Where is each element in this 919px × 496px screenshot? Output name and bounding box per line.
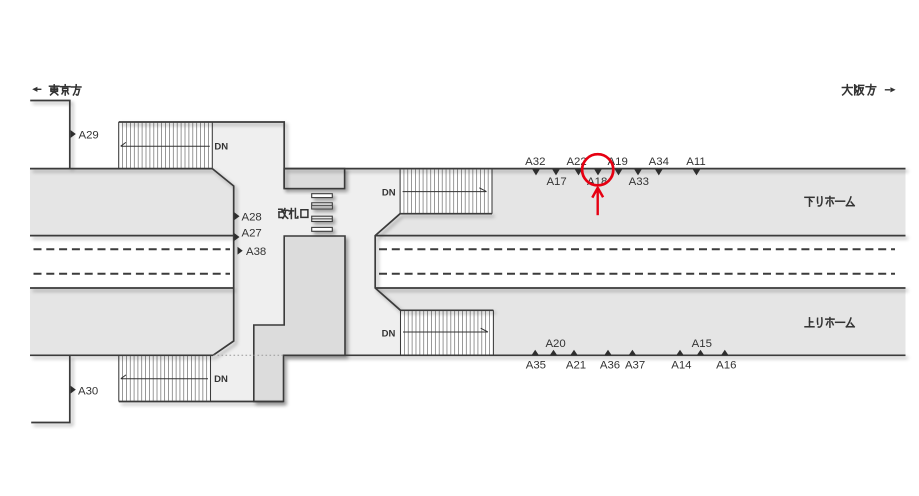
- svg-text:DN: DN: [382, 328, 396, 339]
- svg-text:A38: A38: [246, 246, 266, 258]
- svg-text:A28: A28: [242, 211, 262, 223]
- svg-text:A35: A35: [526, 359, 546, 371]
- svg-text:DN: DN: [214, 374, 228, 385]
- svg-text:A11: A11: [686, 156, 705, 168]
- svg-text:A30: A30: [78, 386, 98, 398]
- svg-text:A34: A34: [649, 156, 669, 168]
- svg-text:A36: A36: [600, 359, 620, 371]
- svg-text:A17: A17: [546, 176, 566, 188]
- svg-text:A15: A15: [692, 338, 712, 350]
- svg-text:A29: A29: [79, 130, 99, 142]
- svg-text:A16: A16: [716, 359, 736, 371]
- svg-text:A20: A20: [545, 338, 565, 350]
- svg-text:A33: A33: [629, 176, 649, 188]
- svg-text:DN: DN: [382, 187, 396, 198]
- svg-text:A27: A27: [242, 228, 262, 240]
- svg-text:A32: A32: [525, 156, 545, 168]
- svg-text:A14: A14: [671, 359, 691, 371]
- svg-text:DN: DN: [214, 142, 228, 153]
- svg-text:A37: A37: [625, 359, 645, 371]
- svg-text:A21: A21: [566, 359, 586, 371]
